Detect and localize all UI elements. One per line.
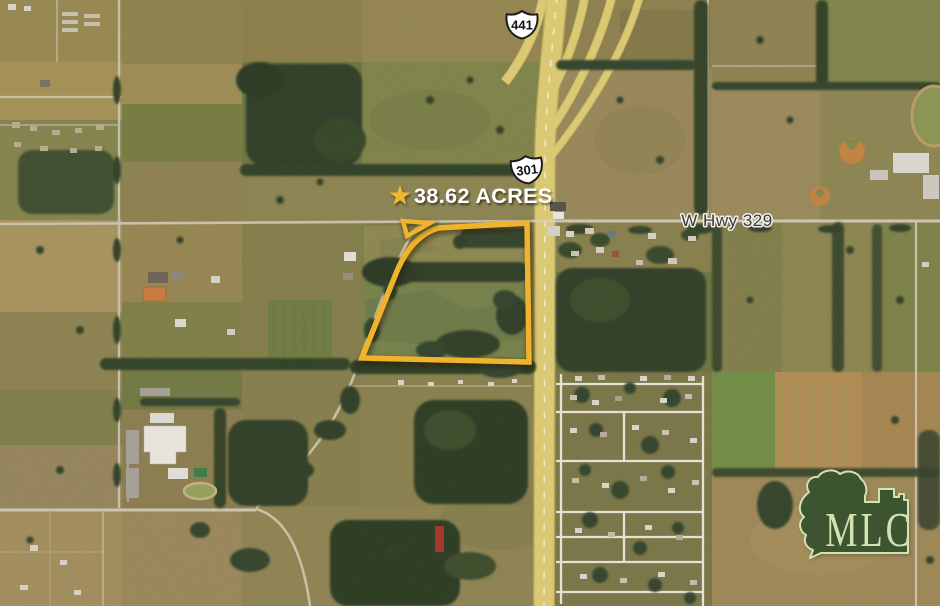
route-shield-441-number: 441 [511, 18, 533, 33]
mlc-logo-text: MLC [825, 504, 912, 557]
route-shield-301-number: 301 [515, 161, 538, 179]
road-label-w-hwy-329: W Hwy 329 [681, 211, 772, 230]
aerial-map: 38.62 ACRES 38.62 ACRES 441 301 W Hwy 32… [0, 0, 940, 606]
imagery-grain [0, 0, 940, 606]
acreage-label: 38.62 ACRES [414, 184, 553, 208]
